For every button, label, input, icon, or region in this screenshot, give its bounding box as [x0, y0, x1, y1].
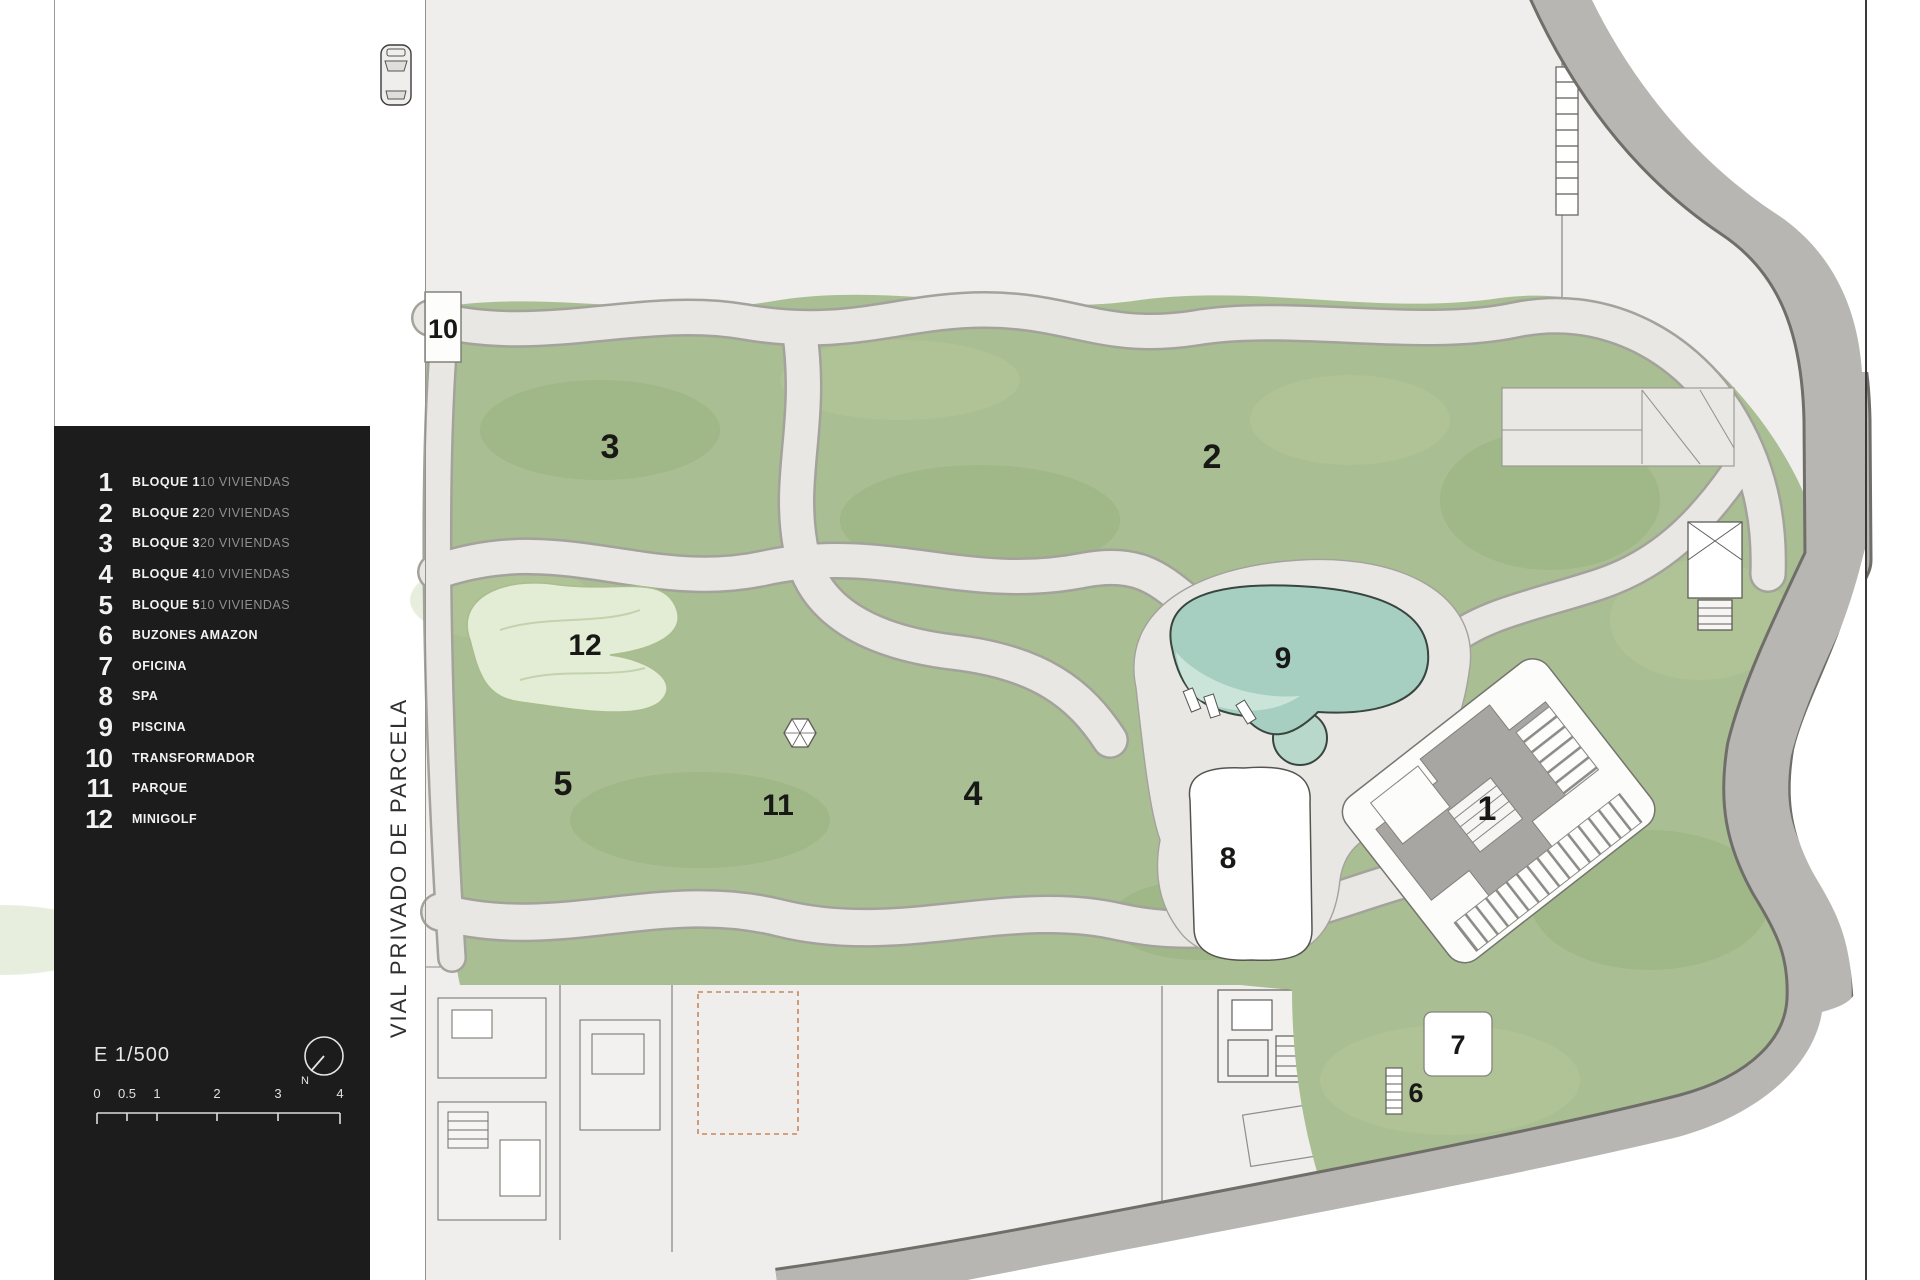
legend-item: 12MINIGOLF — [54, 804, 370, 835]
pool-plan-label: 9 — [1275, 642, 1292, 675]
legend-item-label: PISCINA — [132, 720, 200, 734]
scale-tick-label: 1 — [153, 1086, 160, 1101]
legend-item-detail: 20 VIVIENDAS — [200, 536, 290, 550]
legend-item-label: MINIGOLF — [132, 812, 200, 826]
scale-tick-label: 4 — [336, 1086, 343, 1101]
legend-item-number: 5 — [54, 592, 112, 618]
legend-item: 8SPA — [54, 681, 370, 712]
legend-item-label: BLOQUE 1 — [132, 475, 200, 489]
transformer-plan-label: 10 — [428, 314, 458, 344]
legend-item-label: SPA — [132, 689, 200, 703]
legend-item: 7OFICINA — [54, 651, 370, 682]
scale-bar — [91, 1108, 361, 1130]
crosswalk-hatch-strip — [1556, 67, 1578, 215]
block-2-plan-label: 2 — [1203, 438, 1222, 476]
legend-item: 2BLOQUE 220 VIVIENDAS — [54, 498, 370, 529]
legend-item-number: 10 — [54, 745, 112, 771]
legend-item-number: 12 — [54, 806, 112, 832]
legend-list: 1BLOQUE 110 VIVIENDAS 2BLOQUE 220 VIVIEN… — [54, 426, 370, 834]
right-access-road — [1502, 388, 1734, 466]
legend-item-number: 6 — [54, 622, 112, 648]
scale-tick-label: 3 — [274, 1086, 281, 1101]
legend-item-label: BLOQUE 3 — [132, 536, 200, 550]
north-letter: N — [301, 1075, 309, 1087]
site-plan-page: 3 2 5 4 1 12 11 9 8 10 7 6 VIAL PRIVADO … — [0, 0, 1920, 1280]
legend-item: 6BUZONES AMAZON — [54, 620, 370, 651]
legend-item: 11PARQUE — [54, 773, 370, 804]
legend-item: 10TRANSFORMADOR — [54, 742, 370, 773]
legend-item-label: BLOQUE 2 — [132, 506, 200, 520]
legend-item-number: 2 — [54, 500, 112, 526]
legend-item-detail: 20 VIVIENDAS — [200, 506, 290, 520]
office-plan-label: 7 — [1450, 1030, 1465, 1060]
spa-plan-label: 8 — [1220, 842, 1237, 875]
amazon-mailboxes — [1386, 1068, 1402, 1114]
block-1-plan-label: 1 — [1478, 790, 1497, 828]
legend-item: 4BLOQUE 410 VIVIENDAS — [54, 559, 370, 590]
margin-divider-line — [54, 0, 55, 426]
block-4-plan-label: 4 — [964, 775, 983, 813]
legend-item-detail: 10 VIVIENDAS — [200, 475, 290, 489]
scale-tick-label: 0.5 — [118, 1086, 136, 1101]
legend-item-number: 1 — [54, 469, 112, 495]
legend-item: 3BLOQUE 320 VIVIENDAS — [54, 528, 370, 559]
legend-panel: 1BLOQUE 110 VIVIENDAS 2BLOQUE 220 VIVIEN… — [54, 426, 370, 1280]
mailboxes-plan-label: 6 — [1408, 1078, 1423, 1108]
scale-ratio-label: E 1/500 — [94, 1044, 170, 1067]
car-icon — [381, 45, 411, 105]
north-compass-icon: N — [292, 1024, 356, 1094]
legend-item-number: 4 — [54, 561, 112, 587]
legend-item: 9PISCINA — [54, 712, 370, 743]
legend-item-label: BLOQUE 4 — [132, 567, 200, 581]
scale-tick-label: 0 — [93, 1086, 100, 1101]
legend-item-number: 9 — [54, 714, 112, 740]
block-3-plan-label: 3 — [601, 428, 620, 466]
park-plan-label: 11 — [762, 789, 794, 822]
legend-item-label: PARQUE — [132, 781, 200, 795]
legend-item-number: 11 — [54, 775, 112, 801]
legend-item-number: 8 — [54, 683, 112, 709]
scale-tick-label: 2 — [213, 1086, 220, 1101]
minigolf-plan-label: 12 — [568, 629, 601, 662]
legend-item: 1BLOQUE 110 VIVIENDAS — [54, 467, 370, 498]
block-5-plan-label: 5 — [554, 765, 573, 803]
legend-item-label: OFICINA — [132, 659, 200, 673]
spa-building — [1189, 767, 1312, 960]
legend-item-detail: 10 VIVIENDAS — [200, 598, 290, 612]
legend-item-label: BLOQUE 5 — [132, 598, 200, 612]
legend-item: 5BLOQUE 510 VIVIENDAS — [54, 589, 370, 620]
legend-item-label: TRANSFORMADOR — [132, 751, 255, 765]
legend-item-label: BUZONES AMAZON — [132, 628, 258, 642]
legend-item-detail: 10 VIVIENDAS — [200, 567, 290, 581]
legend-item-number: 7 — [54, 653, 112, 679]
legend-item-number: 3 — [54, 530, 112, 556]
